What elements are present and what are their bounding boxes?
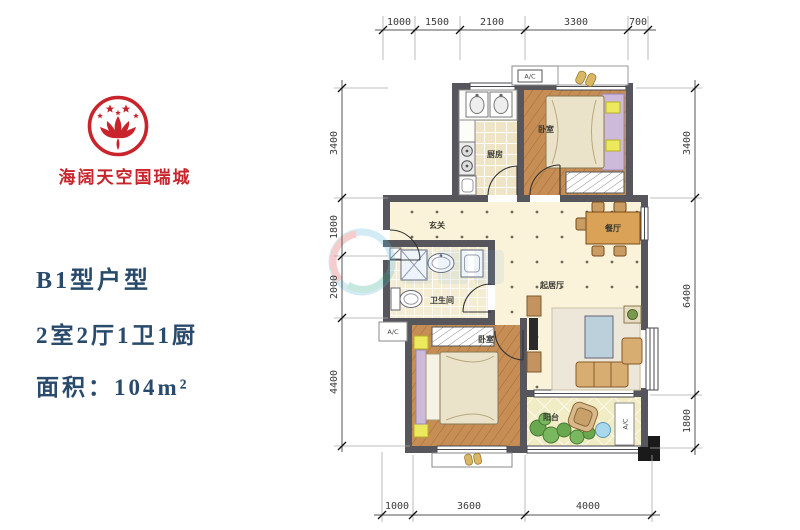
- ac-label: A/C: [387, 328, 399, 336]
- floorplan-drawing: A/C A/C A/C: [0, 0, 800, 530]
- floorplan-page: 海阔天空国瑞城 B1型户型 2室2厅1卫1厨 面积：104m²: [0, 0, 800, 530]
- bedroom-top-label: 卧室: [538, 124, 554, 134]
- dimension-bottom: 1000 3600 4000: [374, 452, 660, 522]
- dim-bottom-3: 4000: [576, 501, 600, 512]
- living-label: 起居厅: [539, 280, 564, 290]
- dim-top-5: 700: [629, 17, 647, 28]
- dim-left-1: 3400: [329, 131, 340, 155]
- chair-icon: [592, 202, 604, 212]
- basin-icon: [596, 423, 611, 438]
- dim-top-1: 1000: [387, 17, 411, 28]
- dim-left-4: 4400: [329, 370, 340, 394]
- bedroom-bottom-label: 卧室: [478, 334, 494, 344]
- dim-top-2: 1500: [425, 17, 449, 28]
- wardrobe-icon: [566, 172, 624, 193]
- dining-label: 餐厅: [604, 223, 621, 233]
- balcony-slider-window: [534, 390, 634, 397]
- chair-icon: [614, 246, 626, 256]
- chair-icon: [592, 246, 604, 256]
- stove-icon: [459, 142, 475, 175]
- dim-right-1: 3400: [682, 131, 693, 155]
- entry-label: 玄关: [429, 220, 445, 230]
- dim-bottom-2: 3600: [457, 501, 481, 512]
- side-table-plant-icon: [624, 306, 641, 323]
- dim-left-3: 2000: [329, 275, 340, 299]
- bed-icon: [546, 94, 624, 170]
- fridge-icon: [459, 176, 476, 195]
- ac-label: A/C: [622, 418, 630, 430]
- kitchen-label: 厨房: [487, 149, 503, 159]
- ac-unit-top: A/C: [512, 66, 558, 85]
- chair-icon: [576, 218, 587, 230]
- coffee-table-icon: [585, 316, 613, 358]
- dim-top-3: 2100: [480, 17, 504, 28]
- dimension-top: 1000 1500 2100 3300 700: [375, 16, 656, 60]
- balcony-railing: [527, 446, 641, 453]
- dim-top-4: 3300: [564, 17, 588, 28]
- bathroom-label: 卫生间: [430, 295, 454, 305]
- dim-right-2: 6400: [682, 284, 693, 308]
- dim-bottom-1: 1000: [385, 501, 409, 512]
- ac-unit-balcony: A/C: [615, 403, 634, 445]
- ac-label: A/C: [524, 73, 536, 81]
- dining-window: [641, 207, 648, 240]
- bedroom-bottom-window: [437, 446, 507, 453]
- chair-icon: [614, 202, 626, 212]
- dim-left-2: 1800: [329, 215, 340, 239]
- dim-right-3: 1800: [682, 409, 693, 433]
- kitchen-window: [470, 83, 515, 90]
- ac-unit-left: A/C: [379, 322, 407, 341]
- balcony-label: 阳台: [543, 412, 559, 422]
- living-bay-window: [646, 328, 658, 390]
